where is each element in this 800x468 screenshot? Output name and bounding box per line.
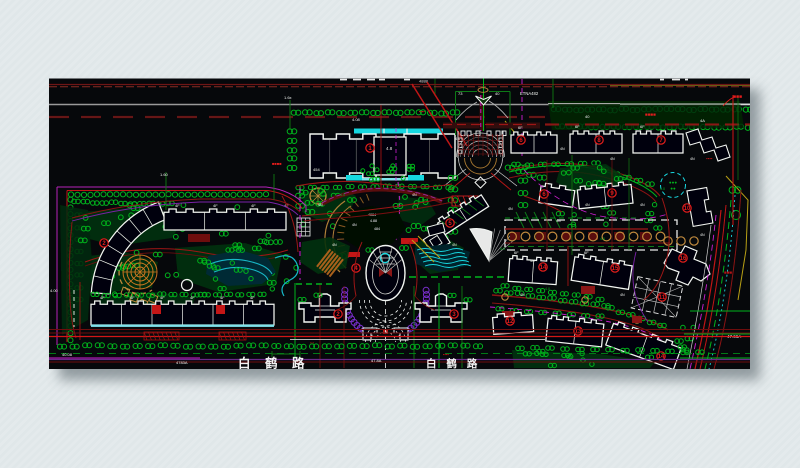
- svg-text:47.8A: 47.8A: [371, 358, 382, 363]
- svg-text:6F: 6F: [518, 125, 523, 130]
- svg-text:4N: 4N: [640, 203, 645, 207]
- svg-text:4N: 4N: [530, 259, 535, 263]
- svg-text:4F: 4F: [100, 295, 105, 300]
- svg-text:ETNA482: ETNA482: [520, 91, 539, 96]
- svg-text:73: 73: [458, 91, 463, 96]
- svg-text:白 鹤 路: 白 鹤 路: [426, 357, 481, 370]
- svg-text:10: 10: [684, 206, 691, 212]
- svg-text:4F: 4F: [220, 295, 225, 300]
- svg-text:4F: 4F: [213, 203, 218, 208]
- svg-text:16: 16: [680, 256, 687, 262]
- svg-text:11: 11: [659, 295, 666, 301]
- svg-text:40: 40: [585, 114, 590, 119]
- svg-text:4N: 4N: [412, 193, 417, 197]
- svg-text:■■■: ■■■: [724, 270, 732, 275]
- svg-text:4N: 4N: [700, 233, 705, 237]
- svg-text:4.0: 4.0: [660, 187, 665, 191]
- svg-text:4.88: 4.88: [370, 219, 377, 223]
- svg-text:4.00: 4.00: [50, 288, 59, 293]
- svg-text:4.0: 4.0: [600, 237, 605, 241]
- svg-text:4N: 4N: [508, 207, 513, 211]
- svg-text:白 鹤 路: 白 鹤 路: [238, 356, 310, 371]
- svg-text:4N: 4N: [318, 203, 323, 207]
- svg-text:6F: 6F: [575, 124, 580, 129]
- svg-text:484: 484: [374, 227, 380, 231]
- svg-text:14: 14: [540, 265, 547, 271]
- svg-text:4N: 4N: [332, 243, 337, 247]
- svg-text:4F: 4F: [251, 203, 256, 208]
- svg-text:●●: ●●: [670, 186, 676, 191]
- svg-text:4.8: 4.8: [386, 146, 393, 151]
- svg-text:4N: 4N: [452, 243, 457, 247]
- svg-text:13: 13: [575, 329, 582, 335]
- svg-text:4N: 4N: [520, 293, 525, 297]
- svg-text:●●●: ●●●: [669, 180, 677, 185]
- svg-text:4N: 4N: [352, 223, 357, 227]
- svg-text:12: 12: [507, 319, 514, 325]
- svg-text:▪▪▪▪: ▪▪▪▪: [443, 352, 449, 357]
- svg-text:6F: 6F: [514, 250, 519, 255]
- svg-text:1.6x: 1.6x: [284, 95, 292, 100]
- svg-text:4.0: 4.0: [545, 287, 550, 291]
- svg-text:6F: 6F: [640, 124, 645, 129]
- svg-text:4N: 4N: [620, 293, 625, 297]
- svg-text:4F: 4F: [190, 295, 195, 300]
- svg-text:40.08: 40.08: [62, 352, 73, 357]
- svg-text:4A: 4A: [700, 118, 705, 123]
- svg-text:1.60: 1.60: [160, 172, 169, 177]
- svg-text:4N: 4N: [556, 219, 561, 223]
- svg-text:4N: 4N: [690, 157, 695, 161]
- svg-text:4F: 4F: [160, 295, 165, 300]
- svg-text:15: 15: [612, 266, 619, 272]
- svg-text:6F: 6F: [584, 250, 589, 255]
- svg-text:4783A: 4783A: [176, 360, 188, 365]
- svg-text:4.0: 4.0: [340, 193, 345, 197]
- svg-text:■■■■: ■■■■: [272, 161, 282, 166]
- svg-text:4.08: 4.08: [352, 117, 361, 122]
- svg-text:4N: 4N: [610, 157, 615, 161]
- svg-text:4F: 4F: [130, 295, 135, 300]
- svg-text:4N: 4N: [560, 147, 565, 151]
- svg-text:4F: 4F: [250, 295, 255, 300]
- svg-text:▪▪▪▪: ▪▪▪▪: [419, 109, 425, 114]
- svg-text:454: 454: [313, 167, 320, 172]
- svg-text:▪▪▪▪: ▪▪▪▪: [706, 156, 713, 161]
- svg-text:4.0: 4.0: [500, 247, 505, 251]
- svg-text:40: 40: [495, 91, 500, 96]
- svg-text:■■■■: ■■■■: [645, 112, 656, 117]
- svg-text:■■■: ■■■: [733, 94, 742, 100]
- svg-text:4N: 4N: [585, 203, 590, 207]
